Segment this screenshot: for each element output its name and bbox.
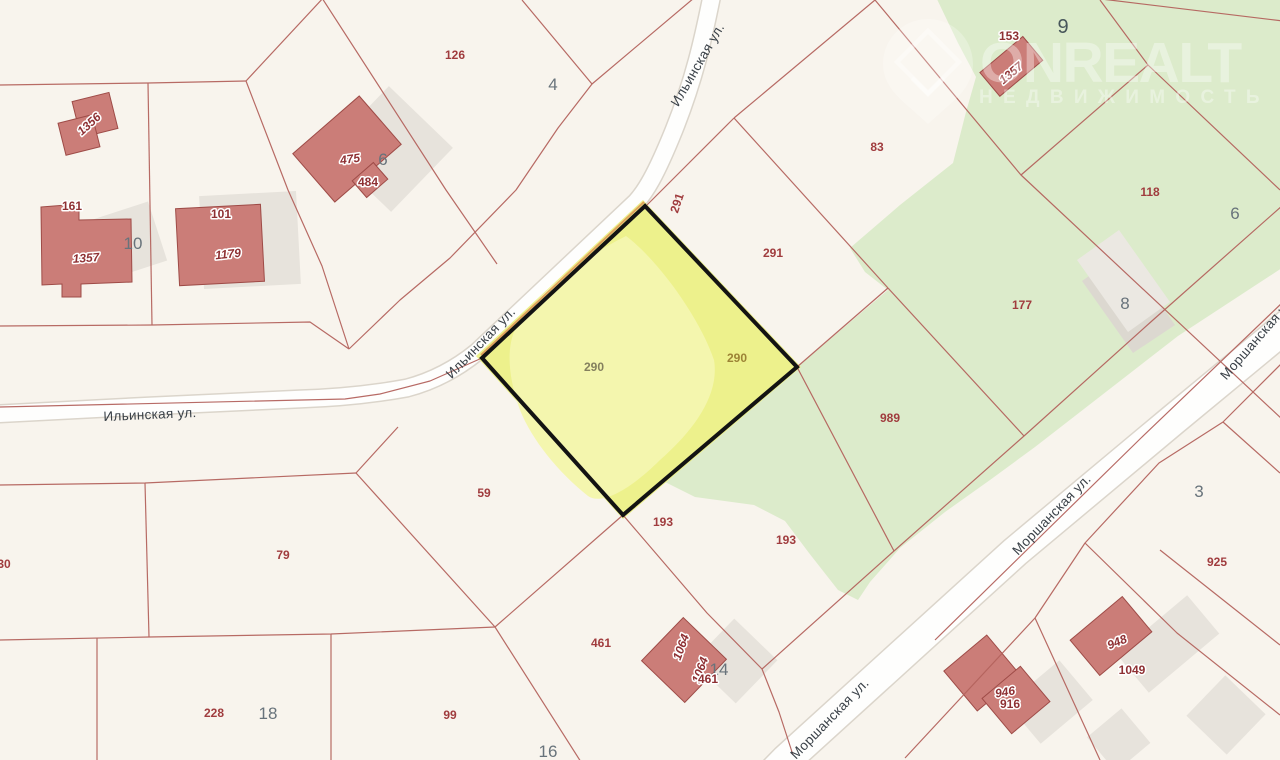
svg-text:16: 16 (539, 742, 558, 760)
svg-text:1179: 1179 (214, 246, 241, 263)
svg-text:177: 177 (1012, 298, 1032, 312)
svg-text:475: 475 (338, 151, 361, 168)
svg-text:4: 4 (548, 75, 557, 94)
svg-text:3: 3 (1194, 482, 1203, 501)
svg-text:6: 6 (378, 150, 387, 169)
svg-text:79: 79 (276, 548, 290, 562)
svg-text:18: 18 (259, 704, 278, 723)
svg-text:1049: 1049 (1119, 663, 1146, 677)
svg-text:10: 10 (124, 234, 143, 253)
svg-text:ONREALT: ONREALT (980, 31, 1242, 95)
svg-text:193: 193 (776, 533, 796, 547)
svg-text:30: 30 (0, 557, 11, 571)
svg-text:228: 228 (204, 706, 224, 720)
svg-text:484: 484 (358, 175, 378, 189)
svg-text:59: 59 (477, 486, 491, 500)
svg-text:1357: 1357 (72, 250, 101, 266)
svg-text:8: 8 (1120, 294, 1129, 313)
svg-text:НЕДВИЖИМОСТЬ: НЕДВИЖИМОСТЬ (979, 87, 1270, 108)
svg-text:126: 126 (445, 48, 465, 62)
svg-text:461: 461 (591, 636, 611, 650)
svg-text:290: 290 (584, 360, 604, 374)
svg-text:925: 925 (1207, 555, 1227, 569)
svg-text:916: 916 (1000, 697, 1020, 711)
svg-text:193: 193 (653, 515, 673, 529)
svg-text:461: 461 (698, 672, 718, 686)
svg-text:83: 83 (870, 140, 884, 154)
svg-text:6: 6 (1230, 204, 1239, 223)
svg-text:118: 118 (1140, 185, 1160, 199)
svg-text:99: 99 (443, 708, 457, 722)
svg-text:161: 161 (62, 199, 82, 213)
svg-text:101: 101 (211, 207, 231, 221)
svg-text:291: 291 (763, 246, 783, 260)
svg-text:290: 290 (727, 351, 747, 365)
svg-text:989: 989 (880, 411, 900, 425)
